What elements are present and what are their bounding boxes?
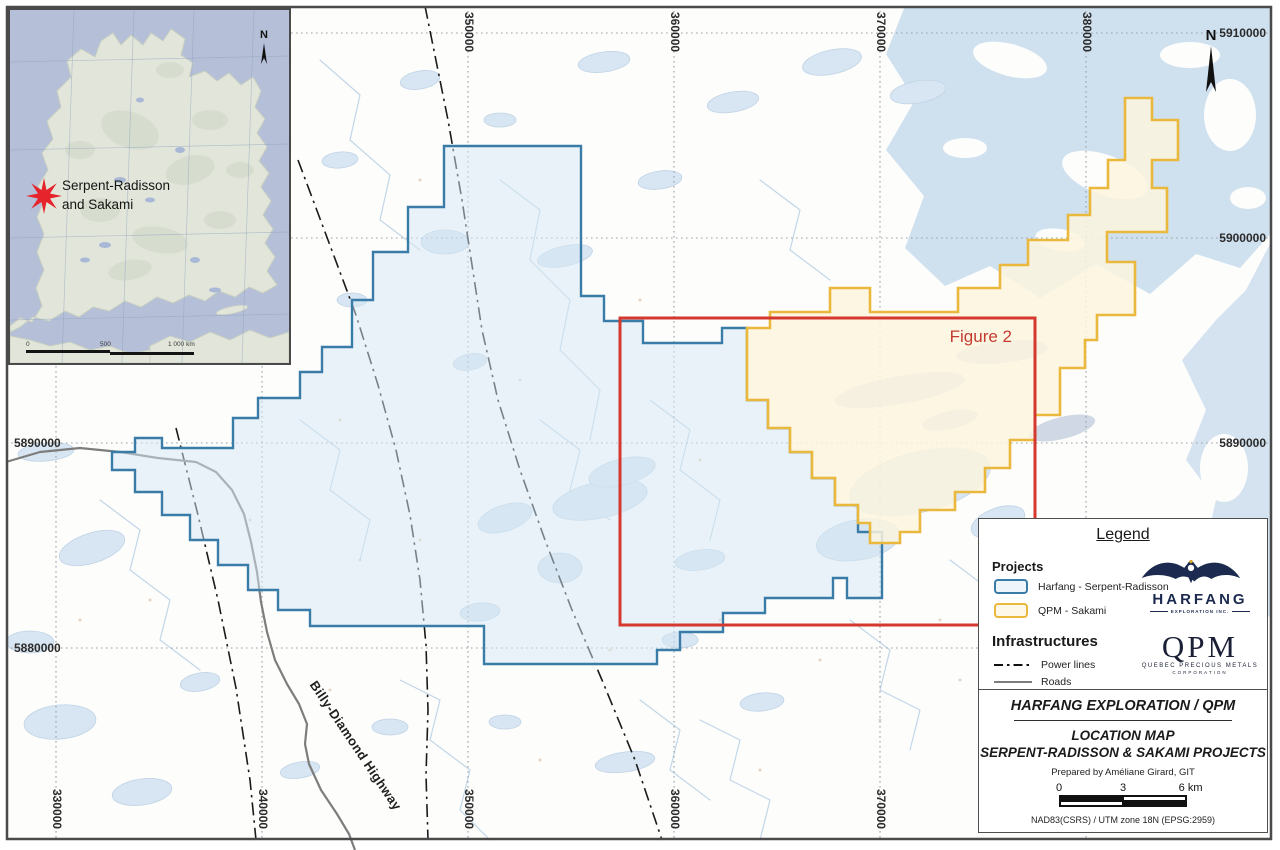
grid-label: 370000 bbox=[874, 789, 888, 829]
grid-label: 5900000 bbox=[1219, 231, 1266, 245]
map-title-block: HARFANG EXPLORATION / QPM LOCATION MAP S… bbox=[979, 690, 1267, 825]
scalebar-label-6km: 6 km bbox=[1179, 782, 1203, 794]
harfang-claims-swatch bbox=[994, 579, 1028, 594]
inset-lake bbox=[175, 147, 185, 153]
inset-scale-mid: 500 bbox=[100, 341, 111, 348]
scalebar-bar bbox=[1059, 795, 1187, 807]
grid-label: 5910000 bbox=[1219, 26, 1266, 40]
grid-label: 370000 bbox=[874, 12, 888, 52]
legend-item-power-lines: Power lines bbox=[994, 659, 1095, 671]
terrain-speckle bbox=[819, 659, 822, 662]
legend-item-label: Power lines bbox=[1041, 659, 1095, 671]
legend-projects-header: Projects bbox=[992, 559, 1043, 574]
legend-title: Legend bbox=[979, 526, 1267, 544]
qpm-logo-subtext2: CORPORATION bbox=[1139, 670, 1261, 675]
qpm-claims-swatch bbox=[994, 603, 1028, 618]
grid-label: 350000 bbox=[462, 12, 476, 52]
island bbox=[1230, 187, 1266, 209]
location-star-icon bbox=[26, 178, 62, 214]
title-divider bbox=[1014, 720, 1232, 721]
map-scalebar: 0 3 6 km bbox=[1059, 782, 1187, 808]
location-map-figure: 3500003600003700003800003300003400003500… bbox=[0, 0, 1280, 850]
map-title-line2: SERPENT-RADISSON & SAKAMI PROJECTS bbox=[979, 744, 1267, 761]
inset-location-line2: and Sakami bbox=[62, 195, 170, 214]
terrain-texture bbox=[192, 110, 228, 130]
scalebar-label-3: 3 bbox=[1120, 782, 1126, 794]
grid-label: 5880000 bbox=[14, 641, 61, 655]
harfang-logo-subtext: EXPLORATION INC. bbox=[1139, 609, 1261, 614]
scalebar-segment bbox=[1123, 801, 1186, 806]
legend-item-qpm: QPM - Sakami bbox=[994, 603, 1106, 618]
inset-lake bbox=[190, 257, 200, 263]
island bbox=[1204, 79, 1256, 151]
lake bbox=[372, 719, 408, 735]
grid-label: 380000 bbox=[1080, 12, 1094, 52]
inset-location-label: Serpent-Radisson and Sakami bbox=[62, 176, 170, 214]
qpm-logo-text: QPM bbox=[1139, 632, 1261, 662]
grid-label: 5890000 bbox=[14, 436, 61, 450]
grid-label: 340000 bbox=[256, 789, 270, 829]
legend-item-label: QPM - Sakami bbox=[1038, 605, 1106, 617]
qpm-logo-subtext: QUEBEC PRECIOUS METALS bbox=[1139, 663, 1261, 669]
map-title-companies: HARFANG EXPLORATION / QPM bbox=[979, 698, 1267, 714]
inset-scalebar-segment bbox=[26, 350, 110, 353]
inset-scalebar-segment bbox=[110, 352, 194, 355]
qpm-logo: QPM QUEBEC PRECIOUS METALS CORPORATION bbox=[1139, 632, 1261, 675]
legend-box: Legend Projects Harfang - Serpent-Radiss… bbox=[978, 518, 1268, 833]
grid-label: 360000 bbox=[668, 789, 682, 829]
terrain-speckle bbox=[419, 179, 422, 182]
terrain-texture bbox=[204, 211, 236, 229]
north-arrow-letter: N bbox=[1206, 27, 1217, 44]
inset-lake bbox=[99, 242, 111, 248]
inset-location-line1: Serpent-Radisson bbox=[62, 176, 170, 195]
harfang-eagle-icon bbox=[1139, 556, 1243, 590]
inset-lake bbox=[209, 288, 221, 293]
figure-2-label: Figure 2 bbox=[950, 327, 1012, 346]
map-title-line1: LOCATION MAP bbox=[979, 727, 1267, 744]
terrain-speckle bbox=[79, 619, 82, 622]
terrain-speckle bbox=[959, 679, 962, 682]
terrain-speckle bbox=[639, 299, 642, 302]
inset-overview-map: N Serpent-Radisson and Sakami 0 500 1 00… bbox=[8, 8, 291, 365]
road-sample-icon bbox=[994, 681, 1032, 683]
terrain-texture bbox=[156, 62, 184, 78]
scalebar-label-0: 0 bbox=[1056, 782, 1062, 794]
lake bbox=[484, 113, 516, 127]
terrain-texture bbox=[226, 162, 254, 178]
grid-label: 330000 bbox=[50, 789, 64, 829]
terrain-speckle bbox=[539, 759, 542, 762]
lake bbox=[489, 715, 521, 729]
terrain-speckle bbox=[939, 619, 942, 622]
legend-item-label: Roads bbox=[1041, 676, 1071, 688]
inset-scalebar: 0 500 1 000 km bbox=[20, 341, 220, 359]
inset-north-letter: N bbox=[260, 29, 268, 41]
legend-infrastructures-header: Infrastructures bbox=[992, 633, 1098, 650]
grid-label: 350000 bbox=[462, 789, 476, 829]
inset-marker-layer bbox=[26, 178, 62, 214]
grid-label: 5890000 bbox=[1219, 436, 1266, 450]
inset-lake bbox=[80, 258, 90, 263]
harfang-logo-text: HARFANG bbox=[1139, 591, 1261, 608]
harfang-logo: HARFANG EXPLORATION INC. bbox=[1139, 556, 1261, 614]
legend-item-roads: Roads bbox=[994, 676, 1071, 688]
prepared-by-credit: Prepared by Améliane Girard, GIT bbox=[979, 767, 1267, 778]
island bbox=[943, 138, 987, 158]
crs-note: NAD83(CSRS) / UTM zone 18N (EPSG:2959) bbox=[979, 815, 1267, 825]
power-line-sample-icon bbox=[994, 664, 1032, 666]
grid-label: 360000 bbox=[668, 12, 682, 52]
scalebar-segment bbox=[1060, 801, 1123, 806]
terrain-speckle bbox=[759, 769, 762, 772]
inset-lake bbox=[136, 98, 144, 103]
terrain-speckle bbox=[149, 599, 152, 602]
inset-scale-end: 1 000 km bbox=[168, 341, 195, 348]
inset-scale-zero: 0 bbox=[26, 341, 30, 348]
